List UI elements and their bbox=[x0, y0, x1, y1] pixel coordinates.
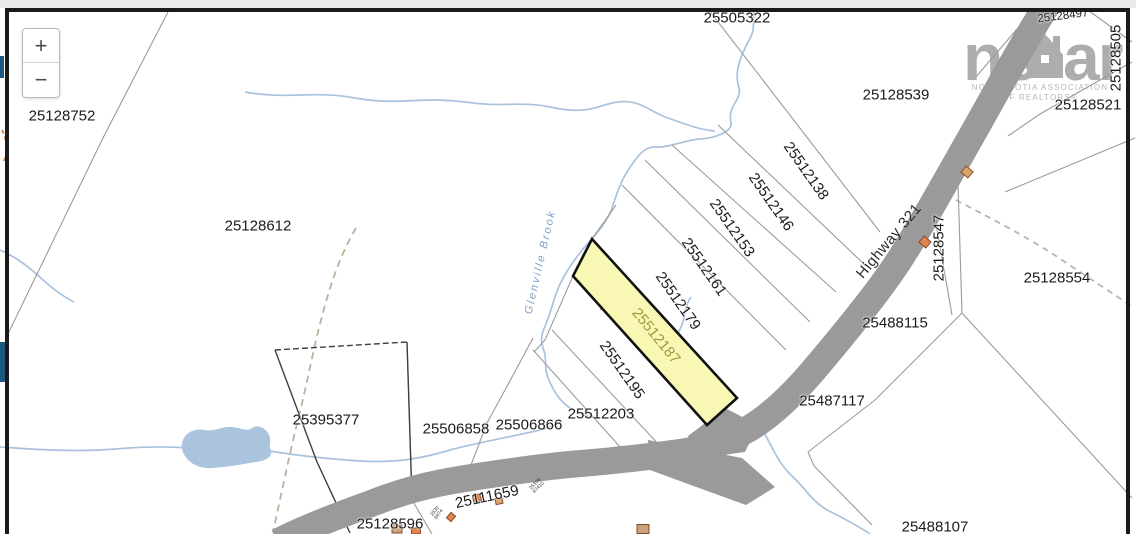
map-canvas[interactable]: ns ar NOVA SCOTIA ASSOCIATION OF REALTOR… bbox=[0, 0, 1136, 534]
building-icon bbox=[392, 525, 402, 533]
top-gray-strip bbox=[0, 0, 1136, 8]
building-icon bbox=[472, 494, 481, 503]
map-viewport[interactable]: ns ar NOVA SCOTIA ASSOCIATION OF REALTOR… bbox=[0, 0, 1136, 534]
frame-top bbox=[5, 8, 1130, 12]
frame-right bbox=[1126, 8, 1130, 534]
zoom-control: + − bbox=[22, 28, 60, 98]
zoom-out-button[interactable]: − bbox=[23, 63, 59, 97]
left-edge-navy-upper bbox=[0, 56, 4, 78]
zoom-in-button[interactable]: + bbox=[23, 29, 59, 63]
building-icon bbox=[637, 525, 649, 534]
building-icon bbox=[495, 497, 503, 504]
building-icon bbox=[412, 528, 421, 534]
frame-left bbox=[5, 8, 9, 534]
nsar-tagline-2: OF REALTORS® bbox=[1002, 93, 1078, 102]
